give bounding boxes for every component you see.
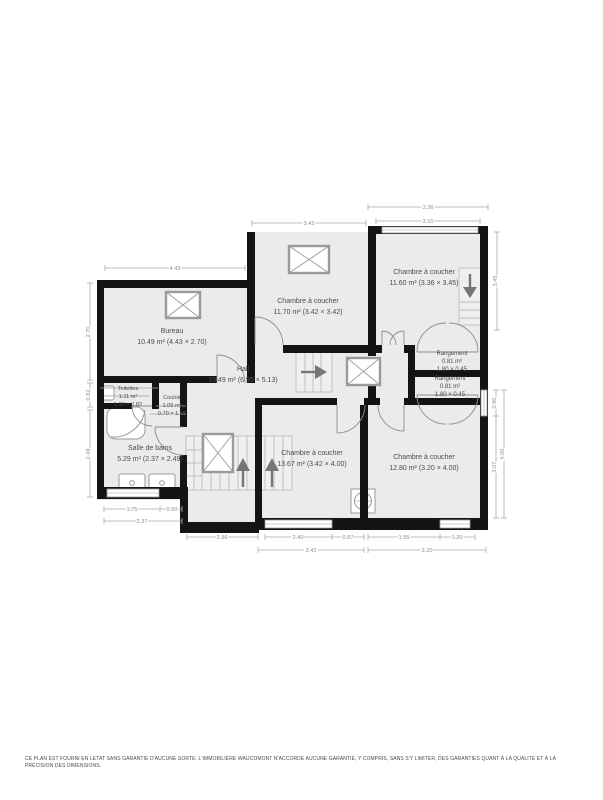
dim-label: 1.75: [127, 507, 138, 513]
skylight: [289, 246, 329, 273]
room-area: 1.11 m²: [119, 394, 138, 400]
dim-label: 3.10: [423, 219, 434, 225]
room-area: 0.81 m²: [440, 384, 460, 390]
dim-label: 2.37: [137, 519, 148, 525]
room-name: Chambre à coucher: [281, 450, 343, 457]
room-area: 11.70 m² (3.42 × 3.42): [274, 309, 343, 316]
room-name: Couloir: [163, 395, 181, 401]
dim-label: 2.70: [86, 327, 92, 338]
room-dims: 1.80 × 0.45: [435, 392, 466, 398]
dim-label: 3.07: [492, 462, 498, 473]
dim-label: 4.43: [170, 266, 181, 272]
main-staircase: [186, 434, 292, 490]
room-name: Hall: [237, 366, 250, 373]
dim-label: 4.00: [500, 449, 506, 460]
dim-label: 3.42: [304, 221, 315, 227]
dim-label: 3.36: [423, 205, 434, 211]
disclaimer-text: CE PLAN EST FOURNI EN LETAT SANS GARANTI…: [25, 756, 582, 770]
room-name: Bureau: [161, 328, 184, 335]
room-dims: 1.80 × 0.45: [437, 367, 468, 373]
dim-label: 3.20: [422, 548, 433, 554]
dim-label: 3.45: [493, 276, 499, 287]
room-name: Salle de bains: [128, 445, 172, 452]
room-area: 13.67 m² (3.42 × 4.00): [277, 461, 346, 468]
room-area: 5.29 m² (2.37 × 2.49): [117, 456, 183, 463]
room-area: 1.09 m²: [163, 403, 182, 409]
skylight: [166, 292, 200, 318]
room-name: Rangement: [434, 376, 465, 382]
hall-steps: [296, 352, 332, 392]
dim-label: 3.42: [306, 548, 317, 554]
room-area: 15.49 m² (6.95 × 5.13): [208, 377, 277, 384]
dim-label: 2.49: [86, 449, 92, 460]
dim-label: 2.40: [293, 535, 304, 541]
room-name: Chambre à coucher: [393, 454, 455, 461]
floor-plan: 4.43 3.42 3.36 3.10 3.45 2.70 0.82 2.49 …: [0, 0, 603, 800]
dim-label: 0.80: [492, 398, 498, 409]
dim-label: 1.20: [452, 535, 463, 541]
sink-faucet: [160, 481, 165, 486]
dim-label: 0.82: [86, 390, 92, 401]
room-name: Rangement: [436, 351, 467, 357]
room-area: 10.49 m² (4.43 × 2.70): [137, 339, 206, 346]
dim-label: 0.50: [167, 507, 178, 513]
room-area: 12.80 m² (3.20 × 4.00): [389, 465, 458, 472]
dim-label: 0.87: [343, 535, 354, 541]
room-name: Chambre à coucher: [277, 298, 339, 305]
dim-label: 2.96: [217, 535, 228, 541]
room-dims: 0.70 × 1.56: [158, 411, 186, 417]
dim-label: 1.95: [399, 535, 410, 541]
room-name: Toilettes: [118, 386, 139, 392]
attic-ladder: [459, 268, 481, 325]
room-area: 11.60 m² (3.36 × 3.45): [390, 280, 459, 287]
skylight: [347, 358, 380, 385]
room-dims: 1.35 × 0.82: [114, 402, 142, 408]
room-area: 0.81 m²: [442, 359, 462, 365]
sink-faucet: [130, 481, 135, 486]
room-name: Chambre à coucher: [393, 269, 455, 276]
